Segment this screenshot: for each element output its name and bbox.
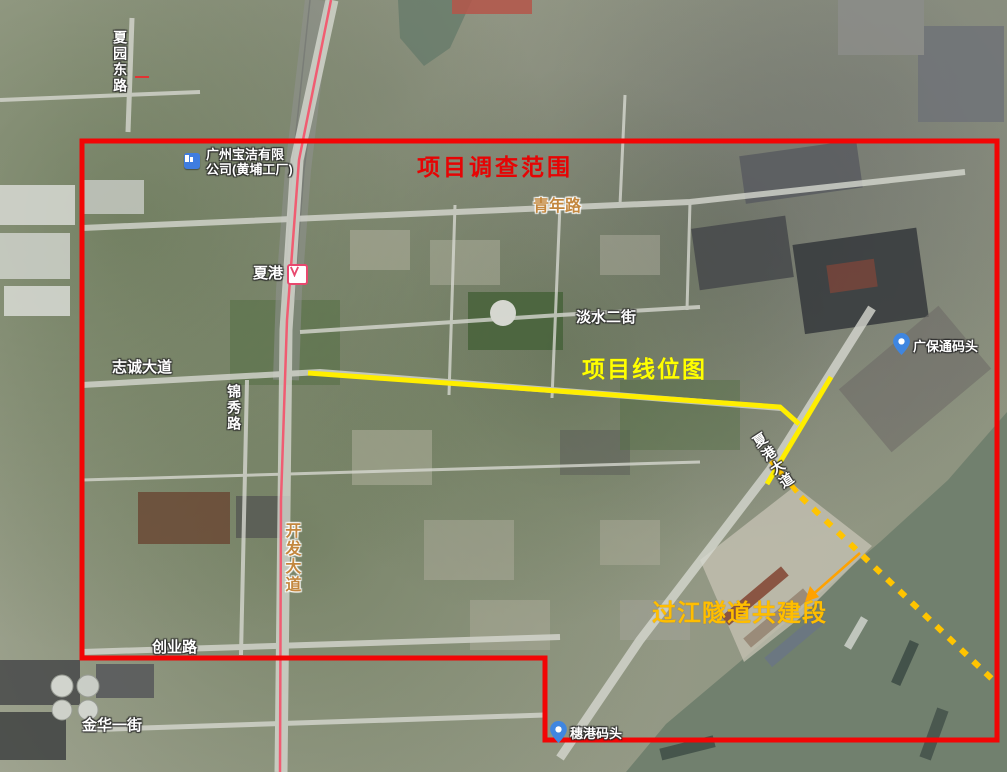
metro-station-label[interactable]: 夏港 — [253, 265, 283, 282]
factory-poi-label-line1: 广州宝洁有限 — [206, 148, 293, 163]
survey-scope-annotation: 项目调查范围 — [417, 155, 573, 181]
metro-station-icon[interactable] — [287, 264, 308, 285]
satellite-map-canvas[interactable]: 项目调查范围 项目线位图 过江隧道共建段 夏园东路 青年路 志诚大道 锦秀路 开… — [0, 0, 1007, 772]
road-label-qingnian: 青年路 — [533, 198, 581, 216]
tunnel-section-annotation: 过江隧道共建段 — [652, 601, 827, 629]
road-label-chuangye: 创业路 — [152, 639, 197, 656]
guangbaotong-wharf-pin[interactable] — [893, 333, 910, 356]
map-pin-icon — [550, 721, 567, 744]
factory-poi-label-line2: 公司(黄埔工厂) — [206, 163, 293, 178]
road-label-danshui: 淡水二街 — [576, 309, 636, 326]
building-icon — [184, 153, 194, 163]
factory-poi-icon[interactable] — [184, 153, 200, 169]
guangbaotong-wharf-label[interactable]: 广保通码头 — [913, 340, 978, 355]
road-label-xiayuan-east: 夏园东路 — [112, 30, 128, 94]
road-label-jinxiu: 锦秀路 — [226, 384, 242, 432]
route-map-annotation: 项目线位图 — [582, 357, 707, 383]
road-label-zhicheng: 志诚大道 — [112, 359, 172, 376]
suigang-wharf-label[interactable]: 穗港码头 — [570, 727, 622, 742]
factory-poi-label[interactable]: 广州宝洁有限 公司(黄埔工厂) — [206, 148, 293, 178]
guangzhou-metro-logo-icon — [289, 266, 300, 277]
road-label-jinhua: 金华一街 — [82, 717, 142, 734]
road-label-kaifa: 开发大道 — [281, 522, 299, 594]
map-pin-icon — [893, 333, 910, 356]
suigang-wharf-pin[interactable] — [550, 721, 567, 744]
